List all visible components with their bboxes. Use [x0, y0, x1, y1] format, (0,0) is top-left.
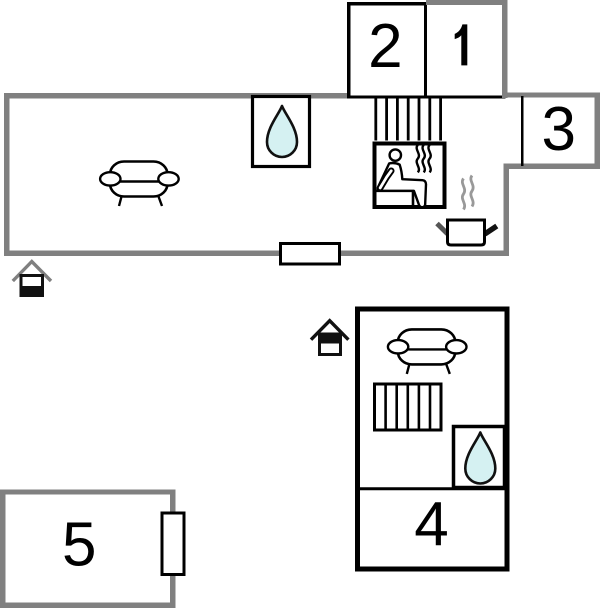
svg-text:4: 4 — [414, 490, 448, 559]
svg-text:2: 2 — [368, 12, 402, 81]
svg-text:3: 3 — [542, 95, 576, 164]
svg-text:5: 5 — [62, 510, 96, 579]
